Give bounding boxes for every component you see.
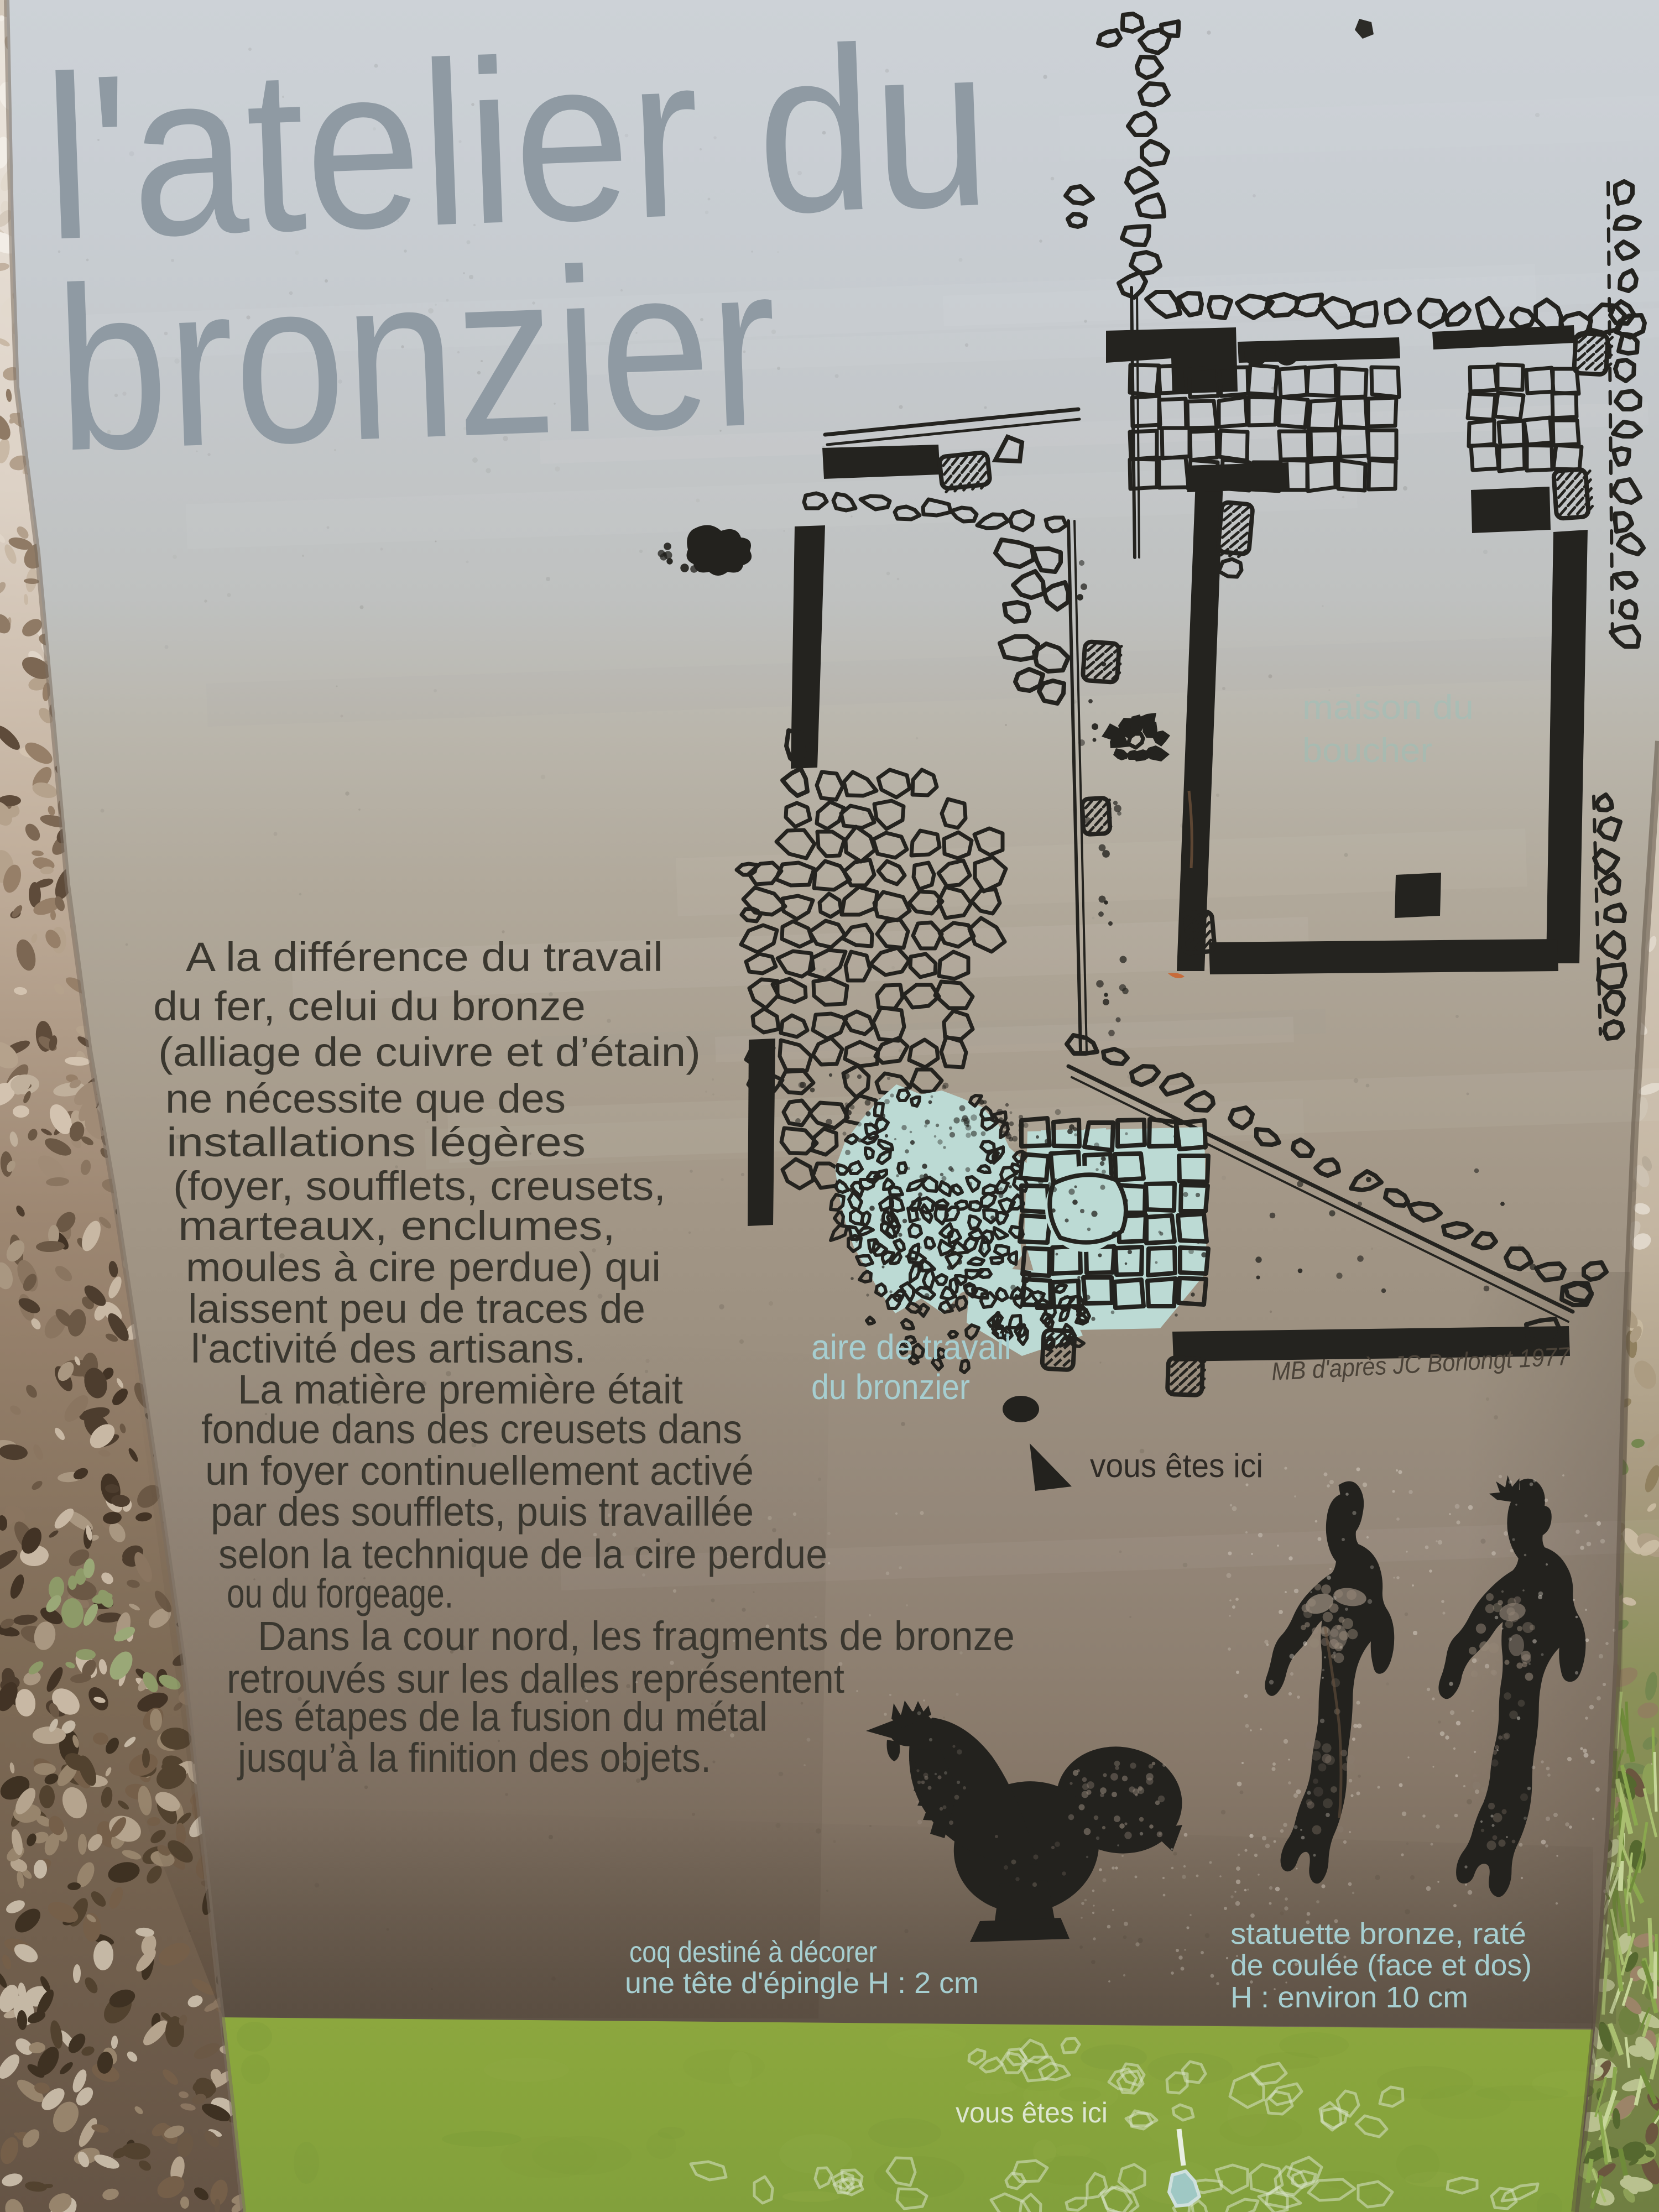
svg-text:laissent peu de traces de: laissent peu de traces de [188,1286,645,1332]
svg-text:l'activité des artisans.: l'activité des artisans. [191,1326,586,1371]
svg-text:les étapes de la fusion du mét: les étapes de la fusion du métal [235,1694,768,1740]
svg-text:de coulée (face et dos): de coulée (face et dos) [1230,1949,1532,1982]
svg-text:aire de travail: aire de travail [811,1327,1011,1367]
svg-text:installations légères: installations légères [166,1119,586,1165]
svg-text:(alliage de cuivre et d’étain): (alliage de cuivre et d’étain) [158,1029,701,1075]
svg-text:vous êtes ici: vous êtes ici [1090,1447,1263,1484]
svg-text:marteaux, enclumes,: marteaux, enclumes, [178,1203,615,1249]
svg-text:(foyer, soufflets, creusets,: (foyer, soufflets, creusets, [173,1163,666,1209]
svg-text:A la différence du travail: A la différence du travail [186,934,663,980]
svg-text:moules à cire perdue) qui: moules à cire perdue) qui [186,1244,661,1290]
svg-text:fondue dans des creusets dans: fondue dans des creusets dans [201,1406,742,1452]
svg-text:boucher: boucher [1302,732,1432,770]
svg-text:statuette bronze, raté: statuette bronze, raté [1230,1917,1526,1950]
svg-text:ne nécessite que des: ne nécessite que des [165,1076,566,1121]
svg-text:du bronzier: du bronzier [811,1367,970,1407]
svg-text:La matière première était: La matière première était [238,1366,683,1412]
svg-text:jusqu’à la finition des objets: jusqu’à la finition des objets. [237,1735,711,1781]
svg-text:H : environ 10 cm: H : environ 10 cm [1230,1981,1468,2014]
svg-text:bronzier: bronzier [52,215,781,500]
svg-text:du fer, celui du bronze: du fer, celui du bronze [153,983,586,1029]
svg-text:coq destiné à décorer: coq destiné à décorer [629,1936,877,1969]
svg-text:ou du forgeage.: ou du forgeage. [227,1571,453,1616]
svg-text:vous êtes ici: vous êtes ici [956,2097,1108,2129]
svg-text:par des soufflets, puis travai: par des soufflets, puis travaillée [211,1489,754,1535]
svg-text:une tête d'épingle H : 2 cm: une tête d'épingle H : 2 cm [625,1966,979,2000]
svg-text:maison du: maison du [1302,688,1474,727]
svg-text:un foyer continuellement activ: un foyer continuellement activé [205,1448,754,1494]
